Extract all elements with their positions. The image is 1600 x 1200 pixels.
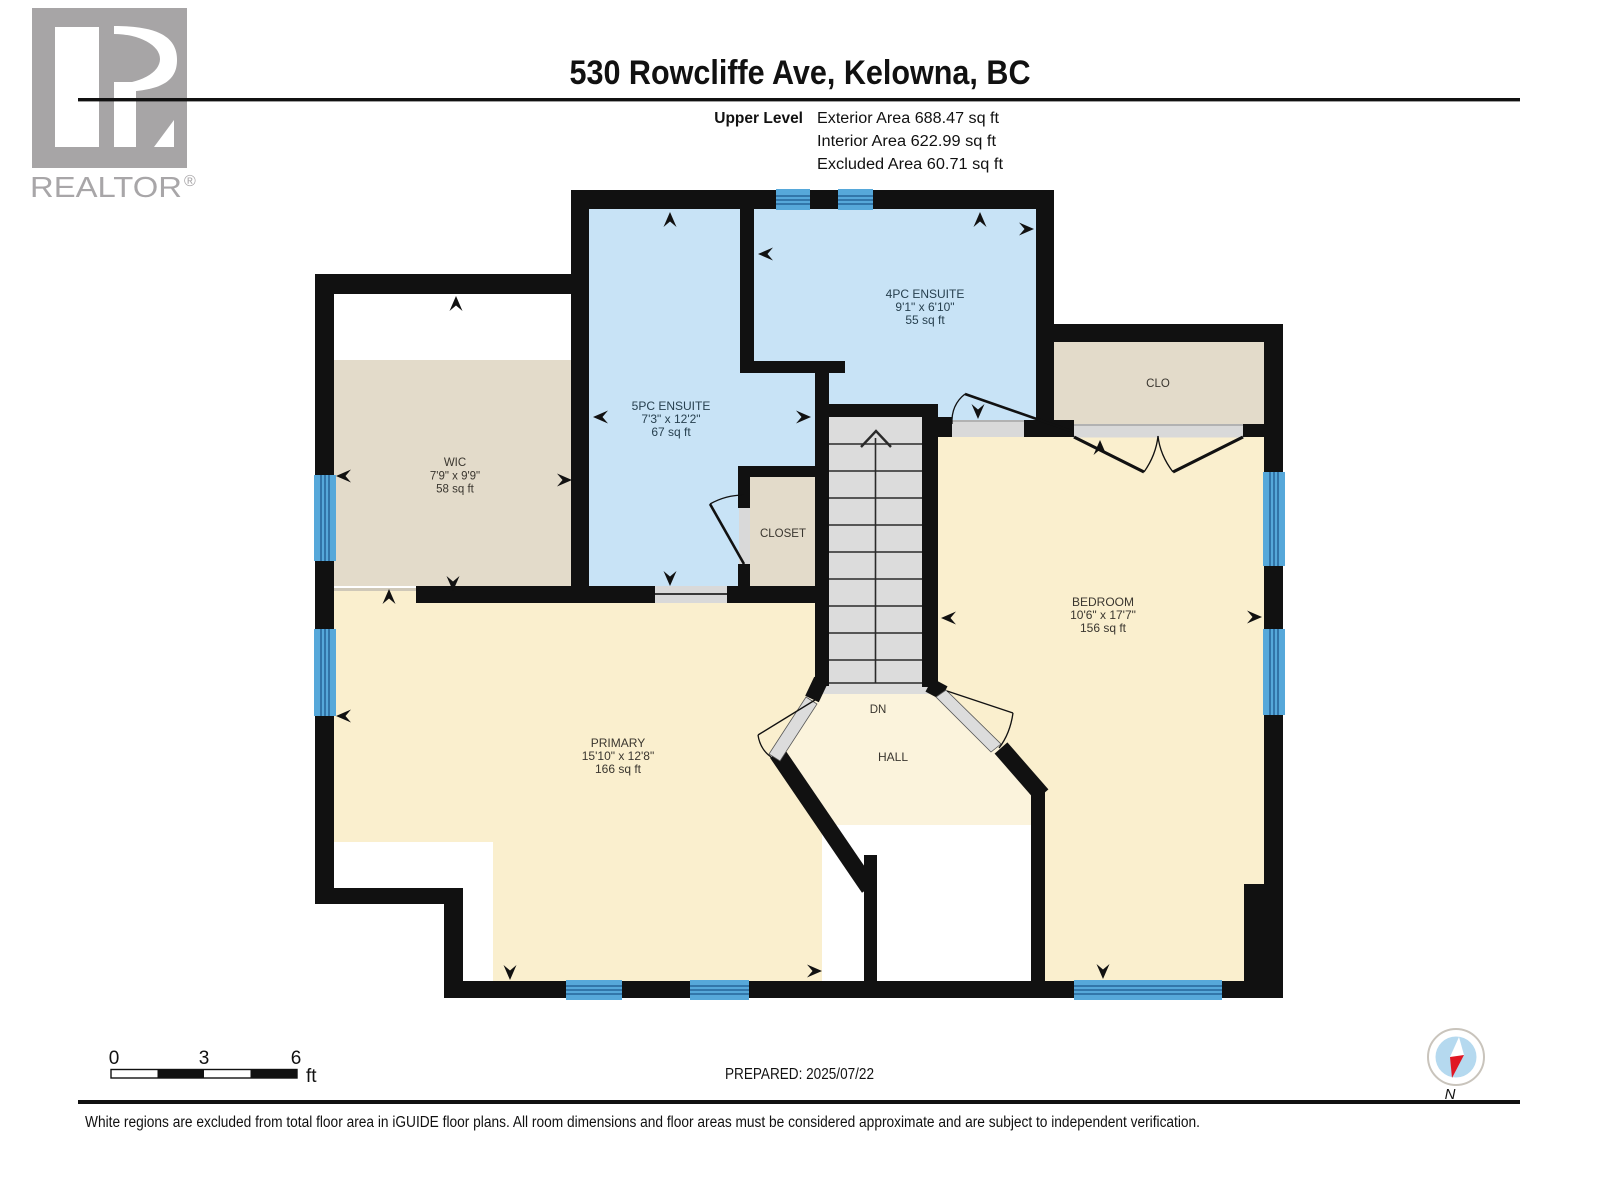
svg-text:PREPARED: 2025/07/22: PREPARED: 2025/07/22	[725, 1066, 874, 1083]
svg-text:®: ®	[184, 173, 196, 190]
svg-text:HALL: HALL	[878, 750, 908, 764]
svg-text:ft: ft	[306, 1066, 317, 1087]
svg-text:CLOSET: CLOSET	[760, 528, 806, 540]
svg-text:55 sq ft: 55 sq ft	[905, 313, 945, 327]
svg-text:530 Rowcliffe Ave, Kelowna, BC: 530 Rowcliffe Ave, Kelowna, BC	[570, 54, 1031, 92]
svg-text:White regions are excluded fro: White regions are excluded from total fl…	[85, 1114, 1200, 1131]
svg-text:Excluded Area 60.71 sq ft: Excluded Area 60.71 sq ft	[817, 156, 1004, 173]
svg-text:7'3" x 12'2": 7'3" x 12'2"	[641, 412, 700, 426]
svg-text:BEDROOM: BEDROOM	[1072, 595, 1134, 609]
svg-text:6: 6	[291, 1048, 302, 1069]
svg-text:58 sq ft: 58 sq ft	[436, 484, 475, 496]
svg-text:CLO: CLO	[1146, 378, 1170, 390]
svg-text:0: 0	[109, 1048, 120, 1069]
svg-text:DN: DN	[870, 704, 887, 716]
svg-text:5PC ENSUITE: 5PC ENSUITE	[632, 399, 711, 413]
svg-text:7'9" x 9'9": 7'9" x 9'9"	[430, 471, 480, 483]
svg-text:PRIMARY: PRIMARY	[591, 736, 645, 750]
svg-text:Upper Level: Upper Level	[714, 110, 803, 127]
svg-text:4PC ENSUITE: 4PC ENSUITE	[886, 287, 965, 301]
svg-text:10'6" x 17'7": 10'6" x 17'7"	[1070, 608, 1136, 622]
svg-text:3: 3	[199, 1048, 210, 1069]
svg-text:REALTOR: REALTOR	[30, 172, 182, 204]
svg-text:156 sq ft: 156 sq ft	[1080, 621, 1127, 635]
svg-text:15'10" x 12'8": 15'10" x 12'8"	[582, 749, 655, 763]
svg-text:Exterior Area 688.47 sq ft: Exterior Area 688.47 sq ft	[817, 110, 1000, 127]
svg-text:166 sq ft: 166 sq ft	[595, 762, 642, 776]
svg-text:Interior Area 622.99 sq ft: Interior Area 622.99 sq ft	[817, 133, 997, 150]
svg-text:WIC: WIC	[444, 457, 466, 469]
svg-text:67 sq ft: 67 sq ft	[651, 425, 691, 439]
svg-text:9'1" x 6'10": 9'1" x 6'10"	[895, 300, 954, 314]
